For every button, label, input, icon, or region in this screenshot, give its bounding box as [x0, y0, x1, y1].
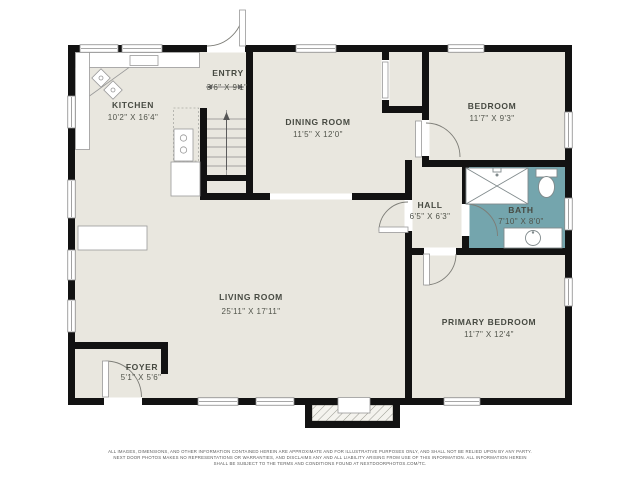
front-door-leaf: [240, 10, 246, 46]
hall-label: HALL: [417, 200, 442, 210]
entry-stoop: [338, 398, 370, 414]
kitchen-counter-left: [76, 53, 90, 150]
refrigerator: [171, 162, 200, 196]
bedroom-dims: 11'7" X 9'3": [470, 114, 515, 123]
dining-dims: 11'5" X 12'0": [293, 130, 343, 139]
disclaimer: ALL IMAGES, DIMENSIONS, AND OTHER INFORM…: [0, 449, 640, 466]
bedroom-label: BEDROOM: [468, 101, 517, 111]
primary-door-leaf: [424, 254, 430, 285]
floor-plan-drawing: KITCHEN 10'2" X 16'4" ENTRY 3'6" X 9'1" …: [0, 0, 640, 480]
entry-dims: 3'6" X 9'1": [207, 83, 248, 92]
hall-door-leaf: [379, 227, 408, 233]
foyer-dims: 5'1" X 5'6": [121, 373, 162, 382]
floor-plan-page: KITCHEN 10'2" X 16'4" ENTRY 3'6" X 9'1" …: [0, 0, 640, 480]
dining-label: DINING ROOM: [285, 117, 350, 127]
front-door-arc: [207, 10, 243, 46]
living-dims: 25'11" X 17'11": [222, 307, 281, 316]
hall-dims: 6'5" X 6'3": [410, 212, 451, 221]
primary-dims: 11'7" X 12'4": [464, 330, 514, 339]
bath-label: BATH: [508, 205, 533, 215]
disclaimer-line3: SHALL BE SUBJECT TO THE TERMS AND CONDIT…: [0, 461, 640, 467]
primary-label: PRIMARY BEDROOM: [442, 317, 536, 327]
stove: [174, 129, 193, 161]
fireplace: [78, 226, 147, 250]
entry-label: ENTRY: [212, 68, 244, 78]
bath-dims: 7'10" X 8'0": [498, 217, 544, 226]
bedroom-door-leaf: [416, 121, 422, 157]
kitchen-dims: 10'2" X 16'4": [108, 113, 158, 122]
foyer-door-leaf: [103, 361, 109, 397]
closet-door-leaf: [383, 62, 389, 98]
living-label: LIVING ROOM: [219, 292, 283, 302]
foyer-label: FOYER: [126, 362, 158, 372]
kitchen-label: KITCHEN: [112, 100, 154, 110]
vanity-sink: [504, 228, 562, 248]
toilet: [536, 169, 557, 177]
